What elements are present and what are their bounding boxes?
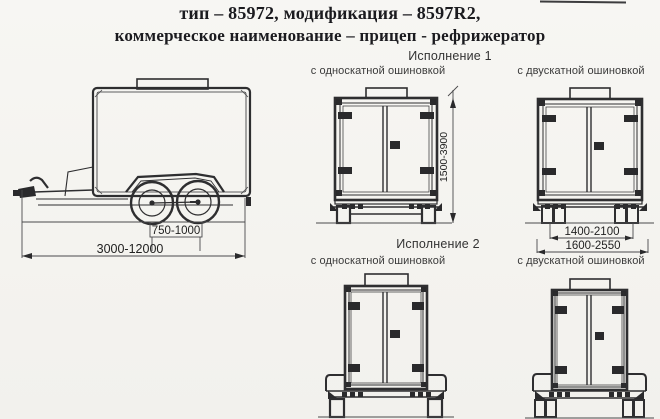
dim-track-width: 1400-2100 bbox=[565, 226, 620, 238]
version-1-single-tire-label: с односкатной ошиновкой bbox=[297, 65, 459, 77]
version-2-dual-tire-label: с двускатной ошиновкой bbox=[505, 255, 657, 267]
dim-axle-spacing: 750-1000 bbox=[152, 225, 201, 237]
dim-body-height: 1500-3900 bbox=[438, 132, 450, 182]
v2-single-chassis bbox=[318, 375, 454, 417]
side-view-drawbar-and-hitch bbox=[13, 167, 233, 205]
v1-single-body bbox=[335, 88, 437, 200]
v1-dual-body bbox=[538, 88, 642, 200]
rear-view-v2-dual-tires bbox=[523, 270, 658, 419]
v1-single-chassis bbox=[316, 200, 452, 223]
page-title: тип – 85972, модификация – 8597R2, комме… bbox=[0, 2, 660, 46]
version-2-label: Исполнение 2 bbox=[378, 237, 498, 251]
version-2-single-tire-label: с односкатной ошиновкой bbox=[297, 255, 459, 267]
side-view-wheels bbox=[126, 174, 224, 224]
v1-width-dimensions: 1400-2100 1600-2550 bbox=[537, 223, 648, 255]
v2-dual-chassis bbox=[525, 374, 654, 418]
scanned-trailer-drawing-page: тип – 85972, модификация – 8597R2, комме… bbox=[0, 0, 660, 419]
trailer-side-view-drawing: 750-1000 3000-12000 bbox=[8, 72, 258, 262]
dim-overall-length: 3000-12000 bbox=[97, 242, 164, 256]
rear-view-v2-single-tires bbox=[318, 270, 478, 419]
version-1-dual-tire-label: с двускатной ошиновкой bbox=[505, 65, 657, 77]
v1-dual-chassis bbox=[525, 200, 654, 223]
dim-overall-width: 1600-2550 bbox=[566, 240, 621, 252]
title-commercial-name-line: коммерческое наименование – прицеп - реф… bbox=[0, 25, 660, 46]
version-1-label: Исполнение 1 bbox=[380, 49, 520, 63]
v2-dual-body bbox=[552, 279, 627, 390]
v2-single-body bbox=[345, 274, 427, 389]
title-type-line: тип – 85972, модификация – 8597R2, bbox=[0, 2, 660, 25]
side-view-body bbox=[93, 79, 251, 206]
side-view-dimensions: 750-1000 3000-12000 bbox=[22, 190, 245, 259]
v1-height-dimension: 1500-3900 bbox=[438, 86, 458, 223]
rear-view-v1-single-tires: 1500-3900 bbox=[302, 82, 467, 232]
rear-view-v1-dual-tires: 1400-2100 1600-2550 bbox=[523, 82, 660, 256]
